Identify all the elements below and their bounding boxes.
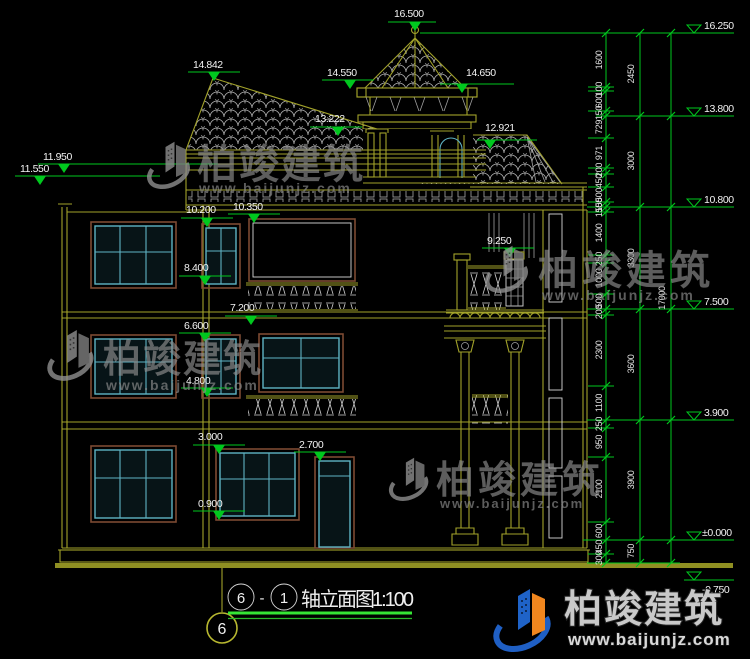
watermark-right: 柏竣建筑 www.baijunjz.com xyxy=(483,246,714,303)
turret xyxy=(357,22,477,183)
window-2f-center xyxy=(259,334,343,392)
svg-text:www.baijunjz.com: www.baijunjz.com xyxy=(439,496,584,511)
watermark-bottom: 柏竣建筑 www.baijunjz.com xyxy=(387,458,604,511)
title-scale: 1:100 xyxy=(372,589,414,611)
plinth xyxy=(58,550,590,562)
ground-line xyxy=(55,563,733,568)
svg-text:150: 150 xyxy=(594,203,604,217)
svg-text:729: 729 xyxy=(594,120,604,134)
svg-text:14.650: 14.650 xyxy=(466,67,496,79)
balcony-2f xyxy=(246,396,358,424)
svg-text:13.222: 13.222 xyxy=(315,113,345,125)
svg-text:9.250: 9.250 xyxy=(487,235,512,247)
drawing-title: 6 - 1 轴立面图 1:100 xyxy=(228,584,414,619)
svg-text:600: 600 xyxy=(594,524,604,538)
svg-text:±0.000: ±0.000 xyxy=(702,527,732,539)
brand-logo-icon xyxy=(45,330,96,384)
svg-text:3.900: 3.900 xyxy=(704,407,729,419)
columns-right xyxy=(452,340,528,545)
svg-text:13.800: 13.800 xyxy=(704,103,734,115)
svg-text:971: 971 xyxy=(594,146,604,160)
svg-text:7.500: 7.500 xyxy=(704,296,729,308)
svg-text:柏竣建筑: 柏竣建筑 xyxy=(564,589,724,631)
watermarks: 柏竣建筑 www.baijunjz.com 柏竣建筑 www.baijunjz.… xyxy=(45,142,731,657)
dim-labels-mid: 2450 3000 3300 3600 3900 750 xyxy=(626,64,636,558)
svg-text:11.950: 11.950 xyxy=(43,151,72,163)
watermark-left: 柏竣建筑 www.baijunjz.com xyxy=(45,330,263,393)
svg-text:3600: 3600 xyxy=(626,354,636,373)
svg-text:8.400: 8.400 xyxy=(184,262,209,274)
svg-text:1100: 1100 xyxy=(594,394,604,412)
window-1f-left xyxy=(91,446,176,522)
svg-text:10.200: 10.200 xyxy=(186,204,216,216)
svg-text:200: 200 xyxy=(594,305,604,319)
right-roof xyxy=(470,135,562,184)
svg-text:450: 450 xyxy=(594,174,604,188)
svg-text:www.baijunjz.com: www.baijunjz.com xyxy=(105,377,259,393)
brand-logo-footer: 柏竣建筑 www.baijunjz.com xyxy=(490,589,730,657)
cad-elevation-canvas: 6 1600 100 600 150 729 971 200 450 500 1… xyxy=(0,0,750,659)
svg-text:6.600: 6.600 xyxy=(184,320,209,332)
svg-text:www.baijunjz.com: www.baijunjz.com xyxy=(567,630,731,649)
svg-text:3900: 3900 xyxy=(626,470,636,489)
svg-text:10.350: 10.350 xyxy=(233,201,263,213)
balcony-3f xyxy=(244,283,360,312)
window-1f-center xyxy=(216,449,299,520)
svg-text:16.500: 16.500 xyxy=(394,8,424,20)
svg-text:14.550: 14.550 xyxy=(327,67,357,79)
svg-text:0.900: 0.900 xyxy=(198,498,223,510)
svg-text:100: 100 xyxy=(594,82,604,96)
svg-text:2450: 2450 xyxy=(626,64,636,83)
svg-text:3.000: 3.000 xyxy=(198,431,223,443)
brand-logo-icon xyxy=(387,458,430,504)
title-bubble-right: 1 xyxy=(280,590,288,607)
svg-text:3000: 3000 xyxy=(626,151,636,170)
title-bubble-left: 6 xyxy=(237,590,245,607)
svg-text:1600: 1600 xyxy=(594,50,604,69)
svg-text:2.700: 2.700 xyxy=(299,439,324,451)
title-separator: - xyxy=(260,590,265,607)
brand-logo-icon xyxy=(145,142,192,193)
svg-text:750: 750 xyxy=(626,544,636,558)
svg-text:150: 150 xyxy=(594,106,604,120)
left-elevation-marks: 16.500 14.842 14.550 14.650 13.222 12.92… xyxy=(15,8,537,520)
window-3f-left xyxy=(91,222,176,288)
right-elevation-marks: 16.250 13.800 10.800 7.500 3.900 ±0.000 … xyxy=(687,20,734,596)
svg-text:7.200: 7.200 xyxy=(230,302,255,314)
svg-text:250: 250 xyxy=(594,417,604,431)
svg-text:1400: 1400 xyxy=(594,223,604,242)
svg-text:12.921: 12.921 xyxy=(485,122,515,134)
door-1f xyxy=(315,457,354,548)
svg-text:14.842: 14.842 xyxy=(193,59,223,71)
title-text: 轴立面图 xyxy=(301,588,374,611)
watermark-top: 柏竣建筑 www.baijunjz.com xyxy=(145,142,365,196)
balcony-right xyxy=(444,252,546,338)
brand-logo-color-icon xyxy=(490,589,553,657)
svg-text:www.baijunjz.com: www.baijunjz.com xyxy=(198,180,352,196)
svg-text:柏竣建筑: 柏竣建筑 xyxy=(103,339,263,381)
svg-text:2300: 2300 xyxy=(594,340,604,359)
svg-text:300: 300 xyxy=(594,551,604,565)
svg-text:950: 950 xyxy=(594,435,604,449)
axis-marker: 6 xyxy=(207,568,237,643)
svg-text:600: 600 xyxy=(594,94,604,108)
opening-3f-center xyxy=(249,219,355,281)
svg-text:10.800: 10.800 xyxy=(704,194,734,206)
axis-bubble-number: 6 xyxy=(218,621,227,638)
svg-text:11.550: 11.550 xyxy=(20,163,49,175)
svg-text:16.250: 16.250 xyxy=(704,20,734,32)
svg-text:www.baijunjz.com: www.baijunjz.com xyxy=(541,287,695,303)
